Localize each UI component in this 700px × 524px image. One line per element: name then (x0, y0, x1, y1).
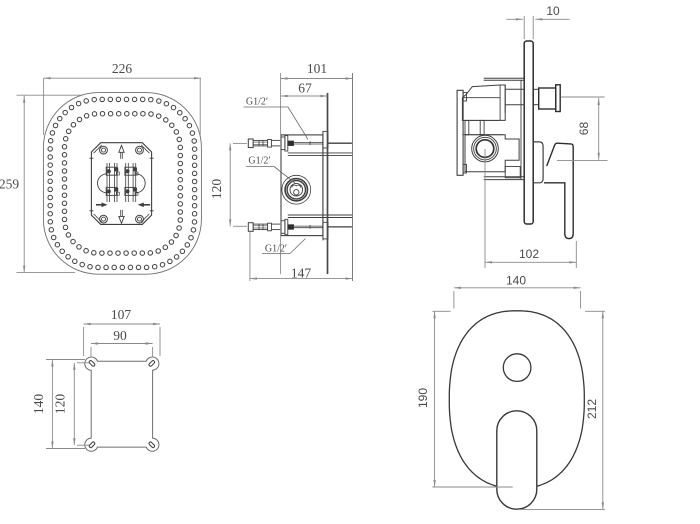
svg-text:190: 190 (416, 388, 430, 408)
svg-text:10: 10 (546, 4, 560, 18)
svg-text:120: 120 (53, 394, 68, 415)
svg-text:G1/2′: G1/2′ (248, 156, 270, 167)
svg-text:140: 140 (31, 394, 46, 415)
svg-text:259: 259 (0, 177, 19, 192)
svg-text:212: 212 (585, 399, 599, 419)
svg-text:67: 67 (298, 81, 312, 96)
svg-text:90: 90 (113, 328, 127, 343)
svg-text:226: 226 (112, 61, 133, 76)
svg-text:101: 101 (307, 61, 327, 76)
svg-text:102: 102 (519, 247, 539, 261)
svg-text:G1/2′: G1/2′ (246, 97, 268, 108)
svg-text:120: 120 (209, 179, 224, 200)
svg-text:140: 140 (506, 274, 526, 288)
svg-text:107: 107 (111, 307, 132, 322)
svg-text:68: 68 (577, 122, 591, 136)
svg-text:G1/2′: G1/2′ (265, 244, 287, 255)
